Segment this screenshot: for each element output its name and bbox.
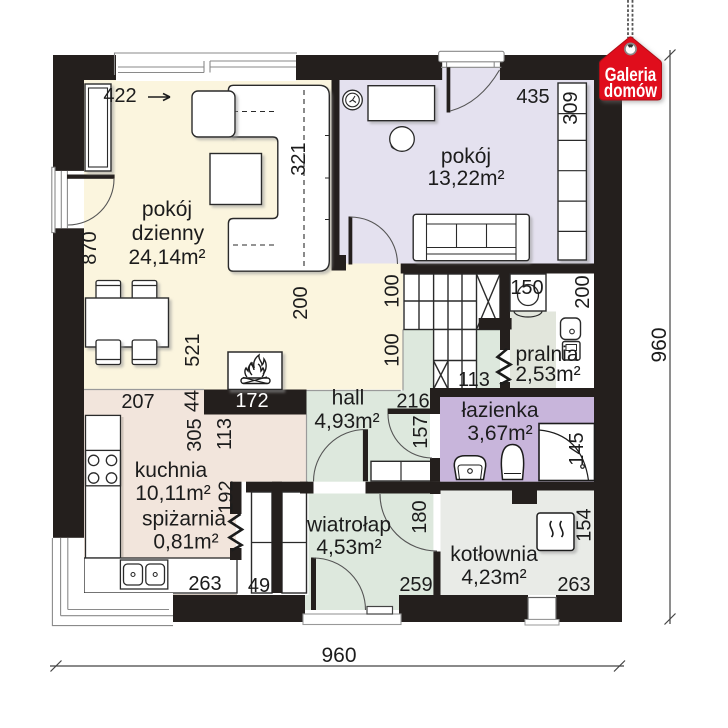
svg-text:960: 960	[321, 644, 356, 667]
svg-text:422: 422	[103, 85, 136, 107]
svg-text:pokój: pokój	[441, 145, 491, 168]
svg-text:hall: hall	[332, 387, 365, 410]
svg-text:150: 150	[510, 277, 543, 299]
svg-text:4,23m²: 4,23m²	[461, 566, 526, 589]
svg-text:263: 263	[188, 573, 221, 595]
svg-text:521: 521	[182, 333, 204, 366]
svg-text:263: 263	[557, 574, 590, 596]
svg-text:24,14m²: 24,14m²	[128, 246, 205, 269]
svg-text:0,81m²: 0,81m²	[153, 531, 218, 554]
svg-text:domów: domów	[604, 79, 658, 101]
svg-text:435: 435	[516, 86, 549, 108]
svg-text:kuchnia: kuchnia	[135, 459, 208, 482]
svg-text:200: 200	[572, 275, 594, 308]
svg-text:154: 154	[574, 508, 596, 541]
svg-text:3,67m²: 3,67m²	[467, 422, 532, 445]
svg-text:207: 207	[121, 391, 154, 413]
svg-text:145: 145	[566, 432, 588, 465]
svg-text:łazienka: łazienka	[461, 399, 538, 422]
svg-text:100: 100	[382, 333, 404, 366]
svg-text:10,11m²: 10,11m²	[135, 482, 210, 505]
svg-text:200: 200	[290, 286, 312, 319]
svg-text:192: 192	[216, 480, 238, 513]
svg-text:870: 870	[79, 231, 101, 264]
svg-text:pokój: pokój	[142, 198, 192, 221]
svg-text:113: 113	[458, 369, 490, 391]
svg-text:kotłownia: kotłownia	[450, 543, 538, 566]
svg-text:100: 100	[382, 274, 404, 307]
svg-text:spiżarnia: spiżarnia	[142, 508, 226, 531]
svg-text:44: 44	[182, 390, 204, 412]
svg-text:113: 113	[214, 418, 236, 450]
svg-text:216: 216	[396, 391, 429, 413]
svg-text:4,93m²: 4,93m²	[314, 410, 379, 433]
svg-text:4,53m²: 4,53m²	[316, 536, 381, 559]
svg-text:2,53m²: 2,53m²	[515, 363, 580, 386]
svg-text:dzienny: dzienny	[132, 222, 205, 245]
svg-text:wiatrołap: wiatrołap	[306, 514, 391, 537]
svg-text:13,22m²: 13,22m²	[427, 167, 504, 190]
svg-text:49: 49	[248, 575, 270, 597]
svg-text:157: 157	[410, 415, 432, 448]
svg-text:309: 309	[560, 91, 582, 124]
svg-text:172: 172	[235, 390, 268, 412]
svg-text:321: 321	[288, 142, 310, 175]
svg-text:259: 259	[399, 574, 432, 596]
svg-text:180: 180	[409, 500, 431, 533]
svg-text:960: 960	[648, 327, 671, 362]
svg-text:305: 305	[184, 418, 206, 451]
